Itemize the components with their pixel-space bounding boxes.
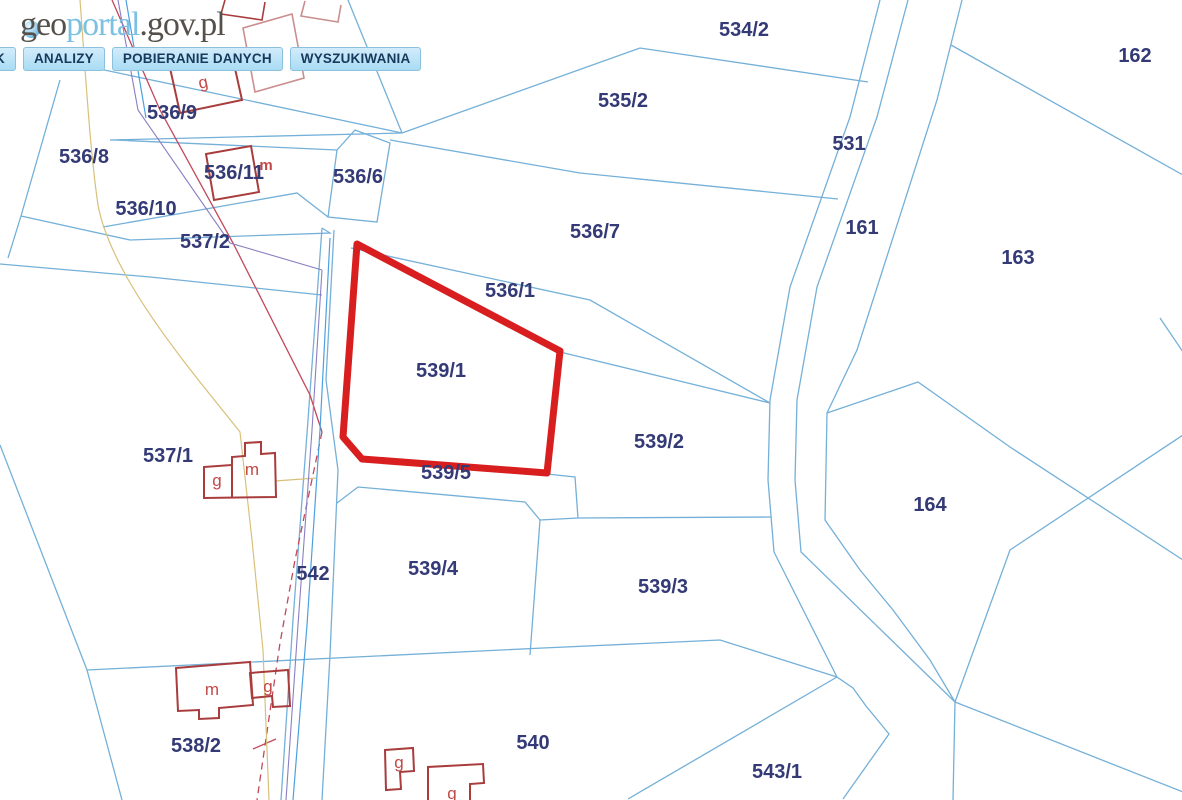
parcel-label-536-11: 536/11 — [204, 162, 264, 184]
building-label-540-large-g: g — [447, 784, 456, 800]
building-top-partial — [221, 0, 265, 20]
logo-text-geo: geo — [20, 6, 66, 43]
parcel-boundaries-east — [827, 45, 1182, 792]
building-label-536-11-m: m — [259, 157, 272, 174]
geoportal-logo[interactable]: geoportal.gov.pl — [20, 4, 225, 46]
parcel-label-536-9: 536/9 — [147, 102, 197, 124]
utility-line-tan — [80, 0, 316, 800]
parcel-label-161: 161 — [845, 217, 878, 239]
logo-text-govpl: .gov.pl — [139, 6, 224, 43]
parcel-label-163: 163 — [1001, 247, 1034, 269]
parcel-label-536-6: 536/6 — [333, 166, 383, 188]
building-label-538-2-g: g — [263, 677, 272, 696]
parcel-label-535-2: 535/2 — [598, 90, 648, 112]
parcel-label-539-2: 539/2 — [634, 431, 684, 453]
parcel-label-539-1: 539/1 — [416, 360, 466, 382]
parcel-label-536-7: 536/7 — [570, 221, 620, 243]
menu-item-wyszukiwania[interactable]: WYSZUKIWANIA — [290, 47, 422, 71]
parcel-label-164: 164 — [913, 494, 947, 516]
parcel-label-162: 162 — [1118, 45, 1151, 67]
parcel-label-540: 540 — [516, 732, 549, 754]
parcel-label-539-3: 539/3 — [638, 576, 688, 598]
parcel-label-536-1: 536/1 — [485, 280, 535, 302]
building-label-537-1-g: g — [212, 471, 221, 490]
parcel-label-543-1: 543/1 — [752, 761, 802, 783]
building-label-537-1-m: m — [245, 460, 259, 479]
parcel-label-537-1: 537/1 — [143, 445, 193, 467]
main-menu-bar: K ANALIZY POBIERANIE DANYCH WYSZUKIWANIA — [0, 47, 421, 71]
parcel-label-531: 531 — [832, 133, 865, 155]
menu-item-pobieranie-danych[interactable]: POBIERANIE DANYCH — [112, 47, 283, 71]
parcel-label-537-2: 537/2 — [180, 231, 230, 253]
power-line-tick — [253, 739, 276, 749]
parcel-labels: 534/2 162 535/2 536/9 531 536/8 536/11 5… — [59, 19, 1152, 783]
parcel-label-536-8: 536/8 — [59, 146, 109, 168]
cadastral-map[interactable]: 534/2 162 535/2 536/9 531 536/8 536/11 5… — [0, 0, 1182, 800]
parcel-label-542: 542 — [296, 563, 329, 585]
building-label-538-2-m: m — [205, 680, 219, 699]
parcel-label-534-2: 534/2 — [719, 19, 769, 41]
parcel-label-536-10: 536/10 — [115, 198, 176, 220]
parcel-label-539-5: 539/5 — [421, 462, 471, 484]
parcel-label-538-2: 538/2 — [171, 735, 221, 757]
parcel-label-539-4: 539/4 — [408, 558, 459, 580]
parcel-boundaries-center — [0, 228, 837, 800]
building-label-540-small-g: g — [394, 753, 403, 772]
logo-text-portal: portal — [66, 6, 139, 43]
menu-item-partial[interactable]: K — [0, 47, 16, 71]
menu-item-analizy[interactable]: ANALIZY — [23, 47, 105, 71]
selected-parcel-outline[interactable] — [343, 244, 560, 473]
